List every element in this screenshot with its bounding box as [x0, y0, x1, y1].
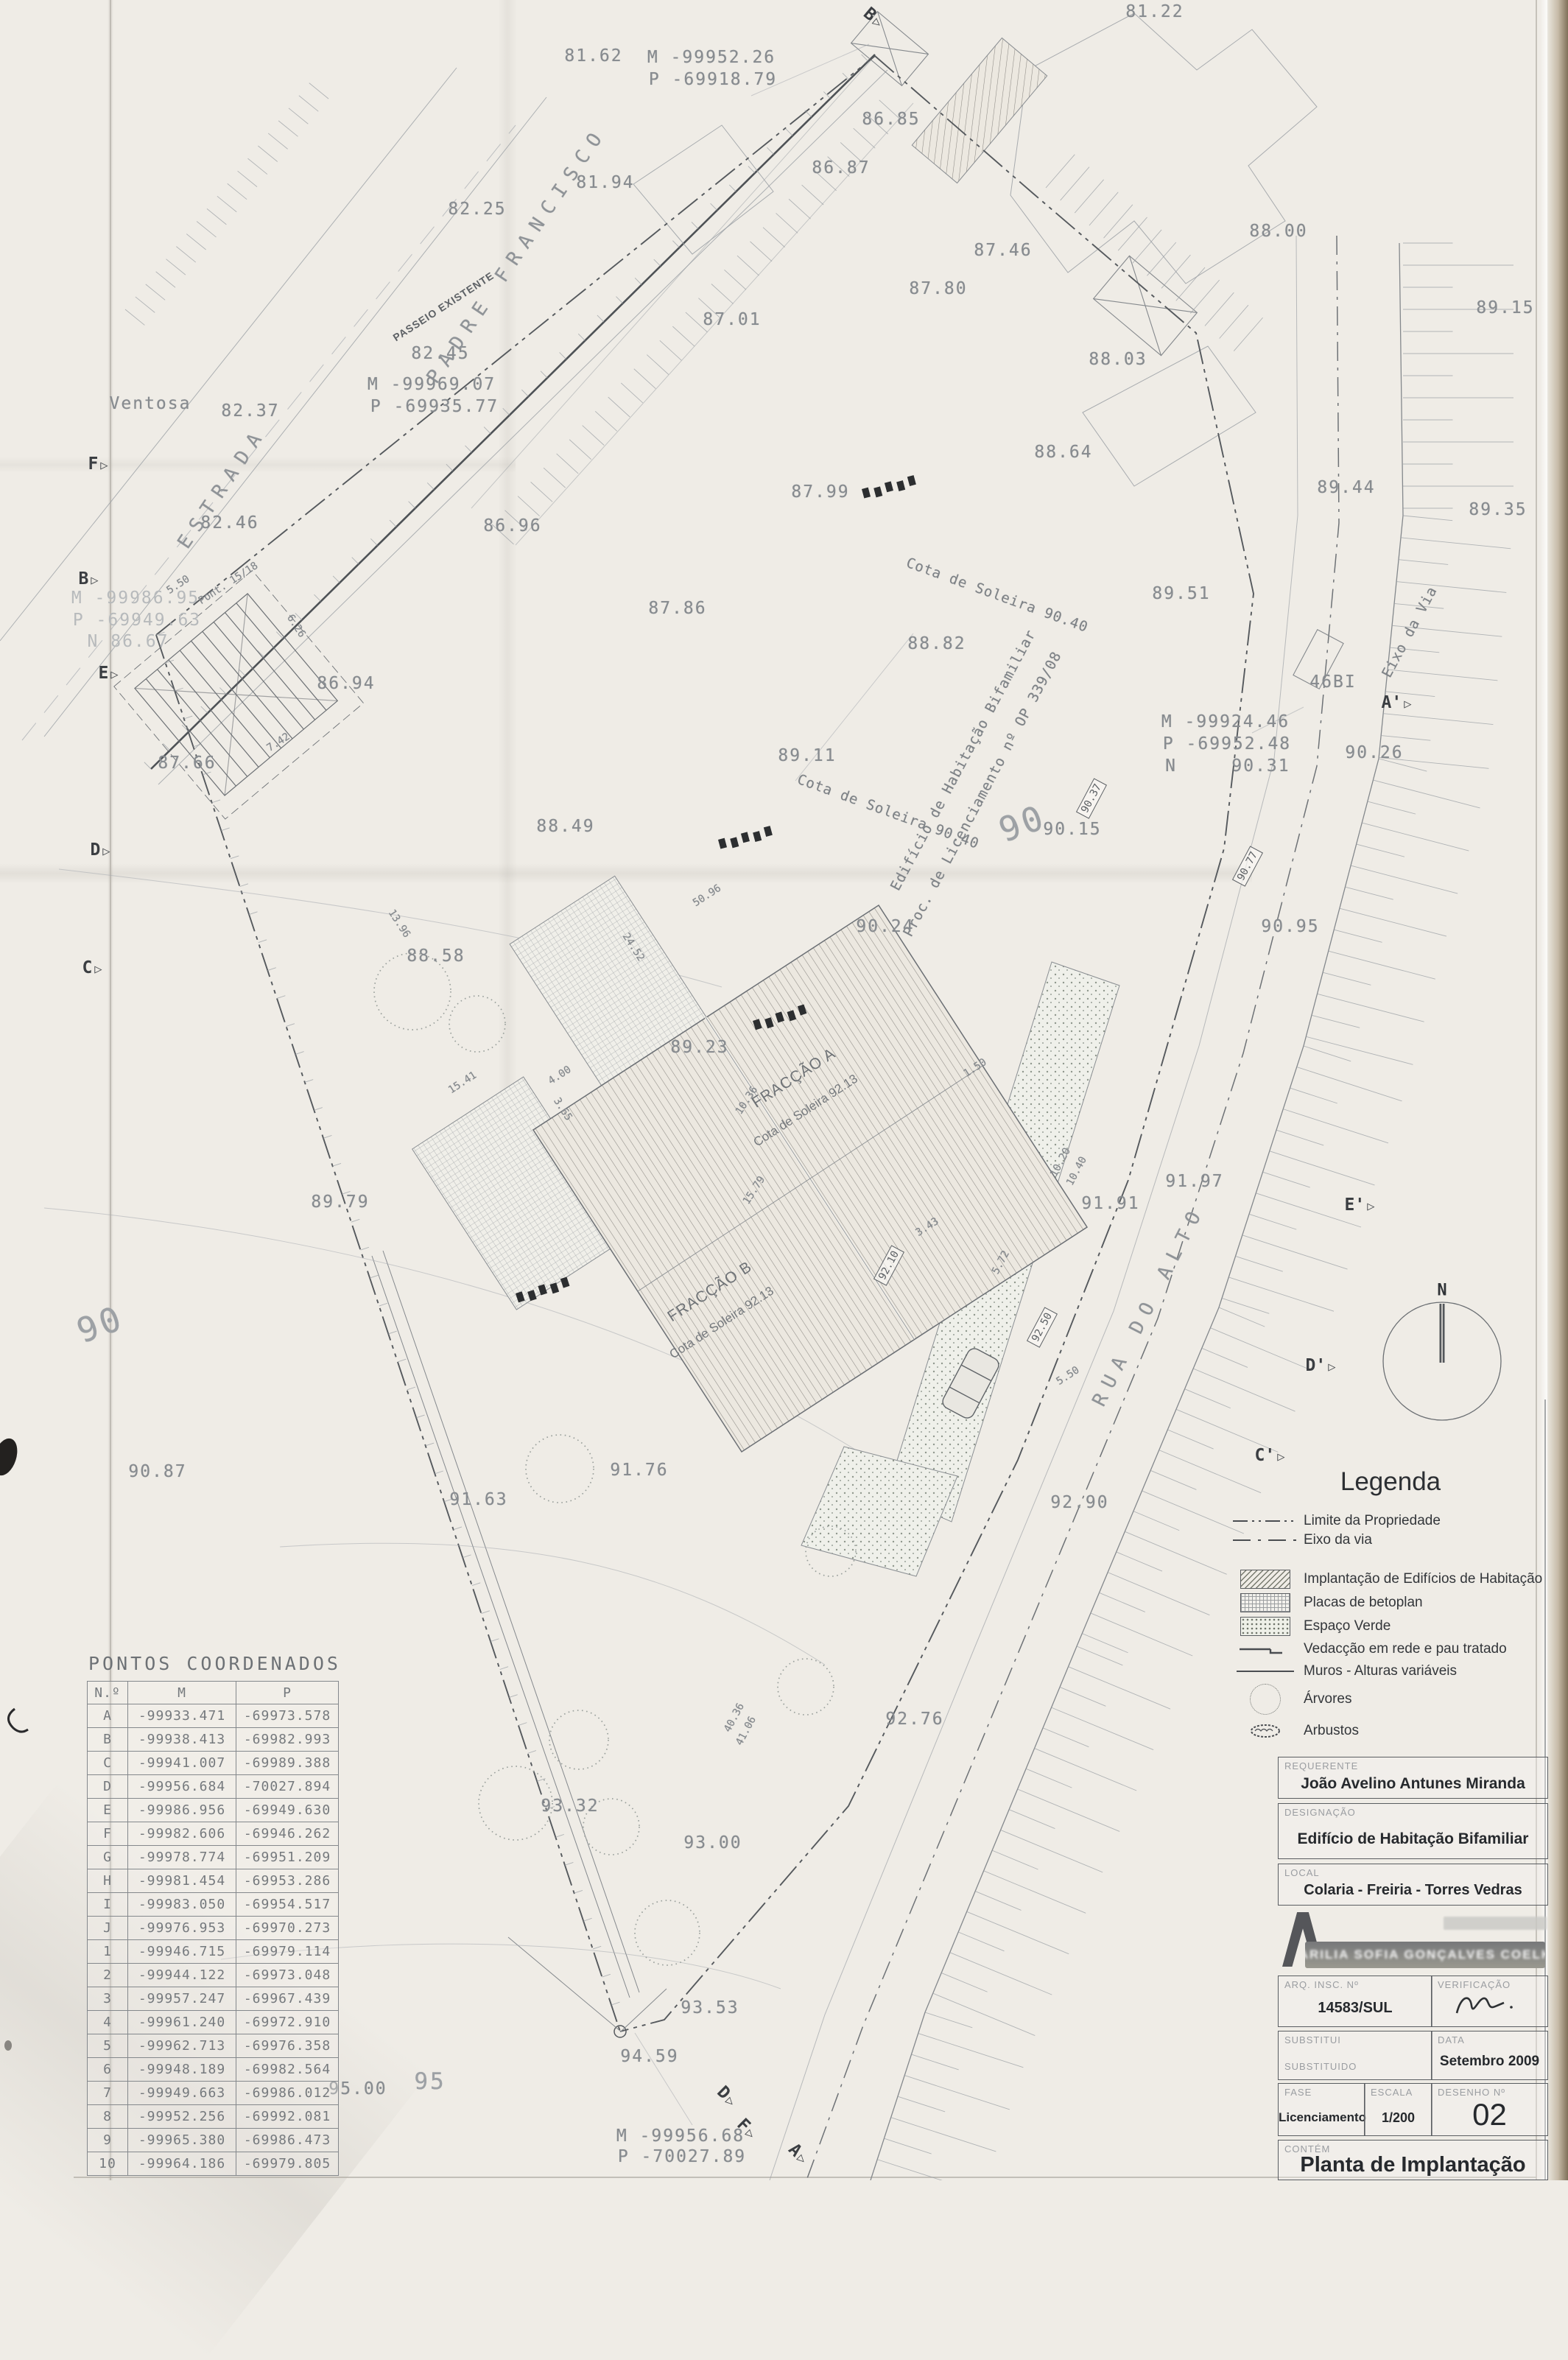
table-cell: -99964.186	[128, 2152, 236, 2176]
legend-symbol-dd2-icon	[1227, 1520, 1304, 1522]
section-arrow-icon: ▷	[1277, 1450, 1284, 1464]
table-cell: -99933.471	[128, 1704, 236, 1728]
verificacao-box: VERIFICAÇÃO	[1431, 1976, 1548, 2027]
legend-symbol-tree-icon	[1227, 1684, 1304, 1715]
requerente-label: REQUERENTE	[1284, 1760, 1358, 1771]
legend-symbol-hatch-icon	[1227, 1570, 1304, 1589]
table-cell: 8	[88, 2105, 128, 2129]
legend-item-label: Limite da Propriedade	[1304, 1513, 1441, 1529]
legend-item: Arbustos	[1227, 1716, 1551, 1746]
legend-item-label: Implantação de Edifícios de Habitação	[1304, 1571, 1542, 1587]
table-cell: -99978.774	[128, 1846, 236, 1869]
table-cell: D	[88, 1775, 128, 1799]
section-marker: A'▷	[1382, 693, 1412, 712]
table-cell: -70027.894	[236, 1775, 339, 1799]
table-cell: -99983.050	[128, 1893, 236, 1917]
table-cell: -99944.122	[128, 1964, 236, 1987]
section-arrow-icon: ▷	[102, 844, 110, 859]
fase-value: Licenciamento	[1279, 2110, 1365, 2125]
table-cell: H	[88, 1869, 128, 1893]
section-arrow-icon: ▷	[100, 458, 108, 473]
designacao-label: DESIGNAÇÃO	[1284, 1807, 1356, 1818]
arq-value: 14583/SUL	[1279, 2000, 1432, 2017]
table-cell: 3	[88, 1987, 128, 2011]
section-arrow-icon: ▷	[91, 573, 98, 588]
fase-box: FASE Licenciamento	[1278, 2083, 1365, 2136]
legend-item: Vedacção em rede e pau tratado	[1227, 1638, 1551, 1660]
arq-label: ARQ. INSC. Nº	[1284, 1979, 1359, 1990]
section-marker: E▷	[98, 664, 118, 683]
substitui-label: SUBSTITUI	[1284, 2034, 1341, 2045]
table-row: 2-99944.122-69973.048	[88, 1964, 339, 1987]
legend: Limite da PropriedadeEixo da viaImplanta…	[1227, 1511, 1551, 1746]
legend-symbol-stip-icon	[1227, 1617, 1304, 1636]
local-value: Colaria - Freiria - Torres Vedras	[1279, 1882, 1547, 1899]
table-cell: 6	[88, 2058, 128, 2082]
table-cell: -69979.805	[236, 2152, 339, 2176]
table-cell: -69992.081	[236, 2105, 339, 2129]
table-cell: -69986.012	[236, 2082, 339, 2105]
table-cell: -69989.388	[236, 1752, 339, 1775]
desenho-value: 02	[1432, 2097, 1547, 2132]
legend-item-label: Muros - Alturas variáveis	[1304, 1663, 1457, 1679]
table-row: 9-99965.380-69986.473	[88, 2129, 339, 2152]
table-cell: -99986.956	[128, 1799, 236, 1822]
coord-col-header: M	[128, 1682, 236, 1704]
table-row: 10-99964.186-69979.805	[88, 2152, 339, 2176]
table-row: J-99976.953-69970.273	[88, 1917, 339, 1940]
table-row: E-99986.956-69949.630	[88, 1799, 339, 1822]
table-row: 4-99961.240-69972.910	[88, 2011, 339, 2034]
fase-label: FASE	[1284, 2087, 1312, 2098]
scanned-site-plan: { "colors":{"ink":"#5f6367","faint":"#9a…	[0, 0, 1568, 2180]
table-row: 3-99957.247-69967.439	[88, 1987, 339, 2011]
legend-item-label: Árvores	[1304, 1691, 1351, 1707]
table-row: I-99983.050-69954.517	[88, 1893, 339, 1917]
table-cell: -69970.273	[236, 1917, 339, 1940]
table-cell: -69973.048	[236, 1964, 339, 1987]
local-box: LOCAL Colaria - Freiria - Torres Vedras	[1278, 1864, 1548, 1906]
escala-box: ESCALA 1/200	[1364, 2083, 1432, 2136]
section-marker: F▷	[733, 2115, 761, 2143]
table-cell: 1	[88, 1940, 128, 1964]
table-cell: -99952.256	[128, 2105, 236, 2129]
section-marker: B▷	[859, 4, 887, 31]
legend-item: Implantação de Edifícios de Habitação	[1227, 1567, 1551, 1591]
legend-item-label: Eixo da via	[1304, 1532, 1372, 1548]
coord-col-header: P	[236, 1682, 339, 1704]
table-cell: 2	[88, 1964, 128, 1987]
data-value: Setembro 2009	[1432, 2054, 1547, 2070]
table-cell: -99961.240	[128, 2011, 236, 2034]
legend-title: Legenda	[1340, 1467, 1441, 1497]
table-cell: -69953.286	[236, 1869, 339, 1893]
section-marker: D'▷	[1306, 1356, 1336, 1375]
substituido-label: SUBSTITUIDO	[1284, 2061, 1357, 2072]
table-cell: -69982.993	[236, 1728, 339, 1752]
table-cell: -69946.262	[236, 1822, 339, 1846]
table-row: C-99941.007-69989.388	[88, 1752, 339, 1775]
table-row: 8-99952.256-69992.081	[88, 2105, 339, 2129]
table-cell: 5	[88, 2034, 128, 2058]
section-arrow-icon: ▷	[94, 962, 102, 977]
requerente-value: João Avelino Antunes Miranda	[1279, 1775, 1547, 1793]
table-cell: I	[88, 1893, 128, 1917]
section-arrow-icon: ▷	[110, 667, 118, 682]
legend-symbol-grid-icon	[1227, 1593, 1304, 1612]
desenho-label: DESENHO Nº	[1438, 2087, 1505, 2098]
section-marker: C▷	[82, 958, 102, 977]
section-marker: B▷	[78, 569, 98, 589]
table-cell: -99946.715	[128, 1940, 236, 1964]
legend-symbol-wall-icon	[1227, 1671, 1304, 1673]
table-cell: 9	[88, 2129, 128, 2152]
table-cell: 10	[88, 2152, 128, 2176]
coord-table: N.ºMP A-99933.471-69973.578B-99938.413-6…	[87, 1681, 339, 2176]
legend-item: Eixo da via	[1227, 1531, 1551, 1550]
table-cell: -99949.663	[128, 2082, 236, 2105]
table-cell: -99962.713	[128, 2034, 236, 2058]
table-row: D-99956.684-70027.894	[88, 1775, 339, 1799]
table-cell: F	[88, 1822, 128, 1846]
section-marker: A▷	[784, 2140, 812, 2168]
legend-item: Muros - Alturas variáveis	[1227, 1660, 1551, 1682]
local-label: LOCAL	[1284, 1867, 1320, 1878]
table-row: 1-99946.715-69979.114	[88, 1940, 339, 1964]
table-cell: 7	[88, 2082, 128, 2105]
legend-symbol-shrub-icon	[1227, 1724, 1304, 1738]
legend-item: Placas de betoplan	[1227, 1591, 1551, 1615]
table-cell: -99965.380	[128, 2129, 236, 2152]
coord-table-header: N.ºMP	[88, 1682, 339, 1704]
table-cell: -99941.007	[128, 1752, 236, 1775]
legend-item: Árvores	[1227, 1682, 1551, 1716]
table-cell: J	[88, 1917, 128, 1940]
stamp-faded-bar	[1444, 1917, 1547, 1930]
section-arrow-icon: ▷	[1328, 1360, 1335, 1374]
architect-stamp: MARILIA SOFIA GONÇALVES COELHO	[1305, 1942, 1545, 1968]
contem-box: CONTÉM Planta de Implantação	[1278, 2140, 1548, 2180]
table-cell: -69954.517	[236, 1893, 339, 1917]
requerente-box: REQUERENTE João Avelino Antunes Miranda	[1278, 1757, 1548, 1799]
table-cell: -99981.454	[128, 1869, 236, 1893]
table-cell: -69951.209	[236, 1846, 339, 1869]
legend-item-label: Placas de betoplan	[1304, 1595, 1423, 1611]
table-cell: -99956.684	[128, 1775, 236, 1799]
table-cell: -69976.358	[236, 2034, 339, 2058]
table-cell: -69982.564	[236, 2058, 339, 2082]
table-cell: -99976.953	[128, 1917, 236, 1940]
table-cell: 4	[88, 2011, 128, 2034]
table-cell: G	[88, 1846, 128, 1869]
section-arrow-icon: ▷	[1367, 1199, 1374, 1214]
legend-symbol-dd1-icon	[1227, 1539, 1304, 1541]
table-cell: -69949.630	[236, 1799, 339, 1822]
substitui-box: SUBSTITUI SUBSTITUIDO	[1278, 2031, 1432, 2080]
legend-item-label: Arbustos	[1304, 1723, 1359, 1739]
coord-table-body: A-99933.471-69973.578B-99938.413-69982.9…	[88, 1704, 339, 2176]
table-cell: -69986.473	[236, 2129, 339, 2152]
table-cell: -99982.606	[128, 1822, 236, 1846]
data-box: DATA Setembro 2009	[1431, 2031, 1548, 2080]
table-cell: -99948.189	[128, 2058, 236, 2082]
section-marker: E'▷	[1345, 1195, 1375, 1215]
table-cell: E	[88, 1799, 128, 1822]
table-cell: -69967.439	[236, 1987, 339, 2011]
coord-table-title: PONTOS COORDENADOS	[88, 1653, 341, 1674]
desenho-box: DESENHO Nº 02	[1431, 2083, 1548, 2136]
legend-item: Limite da Propriedade	[1227, 1511, 1551, 1531]
table-cell: C	[88, 1752, 128, 1775]
section-marker: D▷	[90, 840, 110, 860]
arq-box: ARQ. INSC. Nº 14583/SUL	[1278, 1976, 1432, 2027]
legend-symbol-fence-icon	[1227, 1643, 1304, 1656]
table-row: G-99978.774-69951.209	[88, 1846, 339, 1869]
table-cell: -69973.578	[236, 1704, 339, 1728]
section-marker: F▷	[88, 454, 108, 474]
legend-item-label: Vedacção em rede e pau tratado	[1304, 1641, 1507, 1657]
designacao-box: DESIGNAÇÃO Edifício de Habitação Bifamil…	[1278, 1803, 1548, 1859]
signature-icon	[1449, 1988, 1523, 2022]
legend-item: Espaço Verde	[1227, 1615, 1551, 1638]
data-label: DATA	[1438, 2034, 1465, 2045]
table-cell: -99957.247	[128, 1987, 236, 2011]
table-cell: -69979.114	[236, 1940, 339, 1964]
designacao-value: Edifício de Habitação Bifamiliar	[1279, 1830, 1547, 1848]
section-arrow-icon: ▷	[1404, 697, 1411, 712]
stamp-text: MARILIA SOFIA GONÇALVES COELHO	[1305, 1948, 1545, 1962]
table-cell: -69972.910	[236, 2011, 339, 2034]
legend-spacer	[1227, 1550, 1551, 1567]
section-marker: C'▷	[1255, 1446, 1285, 1465]
escala-value: 1/200	[1365, 2110, 1432, 2126]
section-marker: D▷	[713, 2082, 741, 2110]
coord-col-header: N.º	[88, 1682, 128, 1704]
table-row: A-99933.471-69973.578	[88, 1704, 339, 1728]
table-row: 6-99948.189-69982.564	[88, 2058, 339, 2082]
table-row: F-99982.606-69946.262	[88, 1822, 339, 1846]
escala-label: ESCALA	[1371, 2087, 1413, 2098]
table-cell: A	[88, 1704, 128, 1728]
table-row: B-99938.413-69982.993	[88, 1728, 339, 1752]
table-row: 5-99962.713-69976.358	[88, 2034, 339, 2058]
table-cell: -99938.413	[128, 1728, 236, 1752]
table-row: H-99981.454-69953.286	[88, 1869, 339, 1893]
contem-value: Planta de Implantação	[1279, 2153, 1547, 2177]
legend-item-label: Espaço Verde	[1304, 1618, 1391, 1634]
table-cell: B	[88, 1728, 128, 1752]
table-row: 7-99949.663-69986.012	[88, 2082, 339, 2105]
